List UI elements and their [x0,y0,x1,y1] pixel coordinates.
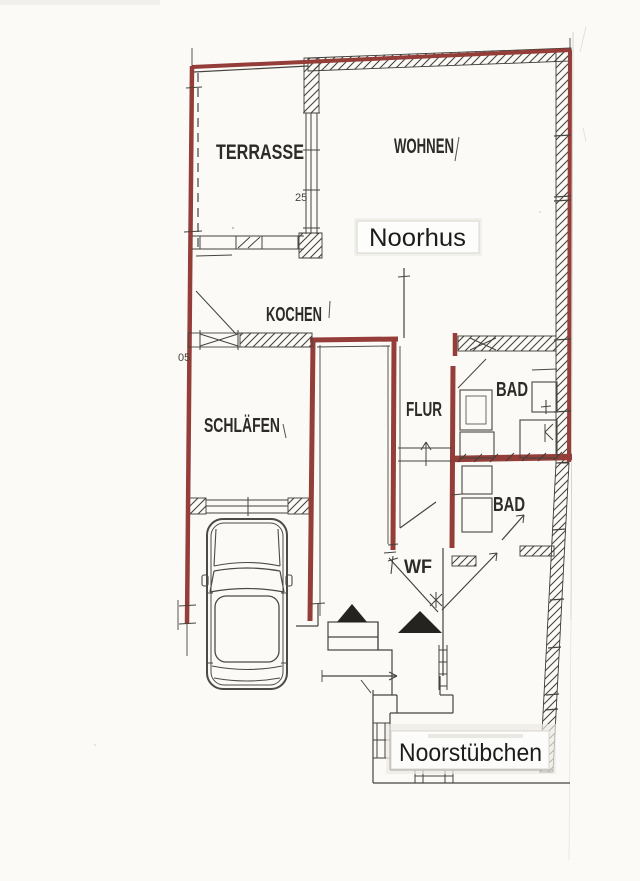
room-label-terrasse: TERRASSE [216,141,304,164]
red-stair-top [310,339,398,340]
floorplan-drawing: TERRASSE WOHNEN KOCHEN SCHLÄFEN FLUR BAD… [0,0,640,881]
noorstuebchen-tag-label: Noorstübchen [399,739,542,767]
room-label-wohnen: WOHNEN [394,135,454,158]
room-label-kochen: KOCHEN [266,304,322,326]
wall-garage-left [188,498,206,514]
red-stair-left [310,340,313,621]
dimension-label-window: 25 [295,192,307,204]
room-label-flur: FLUR [406,399,442,421]
window-terrasse-divider [303,113,320,234]
red-wall-right [569,50,570,462]
scanned-floorplan-page: TERRASSE WOHNEN KOCHEN SCHLÄFEN FLUR BAD… [0,0,640,881]
room-label-bad-lower: BAD [493,494,525,516]
garage-door [206,497,288,516]
wall-stub-shower [452,556,476,566]
wall-terrasse-divider-foot [299,233,322,258]
dimension-label-door: 05 [178,352,190,364]
wall-garage-right [288,498,309,514]
wall-kochen-bottom [240,333,312,347]
red-stair-right [393,341,394,550]
wall-stub-right [520,546,554,556]
room-label-bad-upper: BAD [496,379,528,401]
room-label-schlaefen: SCHLÄFEN [204,414,280,437]
room-label-wf: WF [404,557,432,578]
noorstuebchen-tag: Noorstübchen [386,724,556,774]
wall-right-upper [556,51,569,463]
noorhus-tag-label: Noorhus [369,224,466,252]
noorhus-tag: Noorhus [354,218,482,256]
